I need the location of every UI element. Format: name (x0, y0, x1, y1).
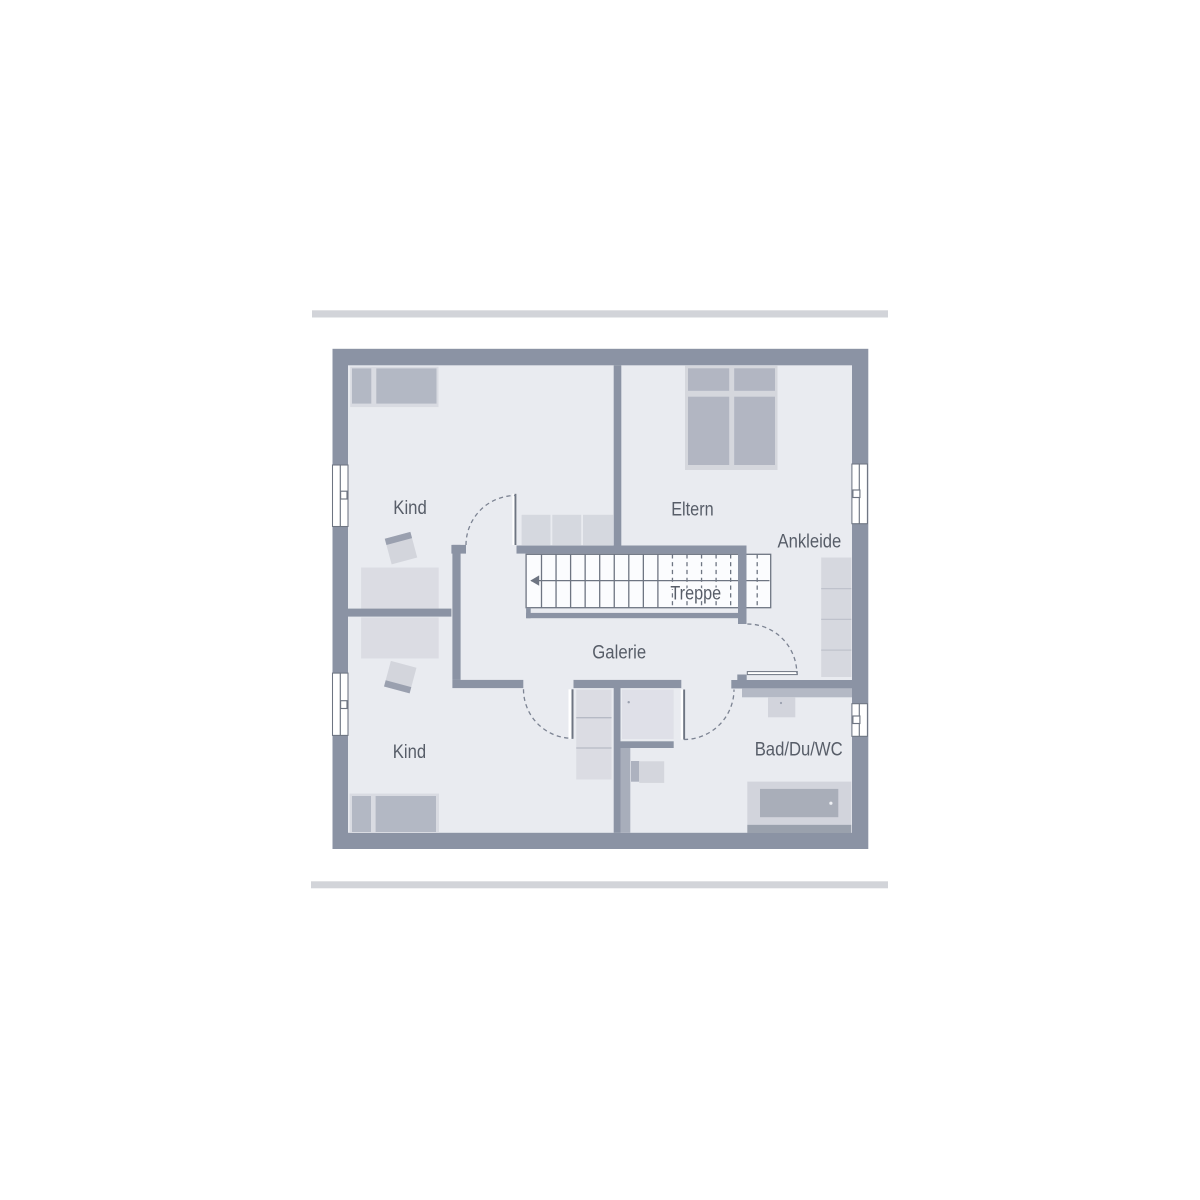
svg-text:Bad/Du/WC: Bad/Du/WC (755, 740, 843, 761)
svg-text:Galerie: Galerie (592, 643, 646, 664)
svg-text:Eltern: Eltern (671, 499, 714, 520)
svg-text:Ankleide: Ankleide (778, 531, 842, 552)
svg-text:Treppe: Treppe (670, 583, 721, 604)
svg-text:Kind: Kind (393, 498, 427, 519)
svg-text:Kind: Kind (393, 742, 426, 763)
